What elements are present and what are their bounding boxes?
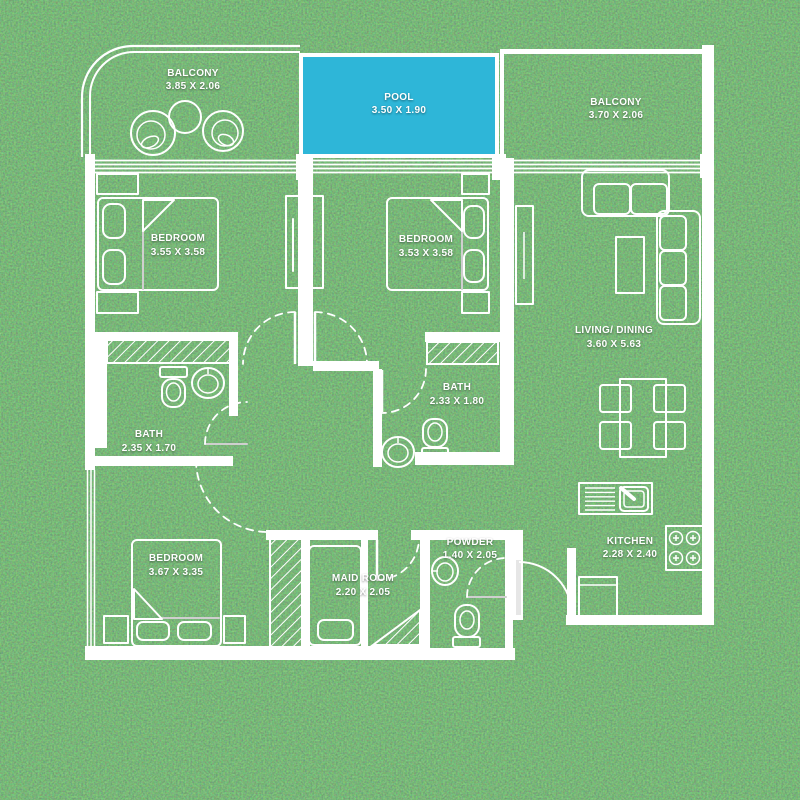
wall-maid-top	[266, 530, 378, 540]
room-dims: 1.40 X 2.05	[443, 550, 498, 561]
wall-bottom-left	[85, 646, 430, 660]
room-dims: 3.50 X 1.90	[372, 105, 427, 116]
room-dims: 2.33 X 1.80	[430, 396, 485, 407]
room-dims: 3.70 X 2.06	[589, 110, 644, 121]
room-name: BATH	[443, 382, 471, 393]
room-name: LIVING/ DINING	[575, 325, 653, 336]
room-name: BALCONY	[167, 68, 219, 79]
room-name: MAID ROOM	[332, 573, 394, 584]
wall-bedroom2-bottom	[313, 361, 379, 371]
wall-living-left	[500, 158, 514, 452]
room-dims: 2.35 X 1.70	[122, 443, 177, 454]
room-name: KITCHEN	[607, 536, 654, 547]
balcony-right-railing-top	[500, 49, 714, 54]
wall-powder-bottom	[428, 648, 515, 660]
wall-bath2-left	[373, 369, 382, 467]
room-name: BEDROOM	[151, 233, 205, 244]
wall-bedroom1-bottom	[95, 332, 238, 341]
wall-left-bath	[85, 336, 107, 448]
room-name: POWDER	[447, 537, 494, 548]
shaft-hatch	[270, 537, 302, 647]
wall-powder-left	[420, 530, 430, 660]
floor-plan-canvas: BALCONY 3.85 X 2.06 POOL 3.50 X 1.90 BAL…	[0, 0, 800, 800]
wall-bath2-top	[425, 332, 502, 342]
wall-powder-right-lower	[505, 618, 513, 660]
pier-top-right	[700, 154, 714, 178]
room-dims: 3.60 X 5.63	[587, 339, 642, 350]
room-dims: 3.53 X 3.58	[399, 248, 454, 259]
room-name: POOL	[384, 92, 414, 103]
room-name: BALCONY	[590, 97, 642, 108]
room-dims: 2.20 X 2.05	[336, 587, 391, 598]
room-dims: 3.85 X 2.06	[166, 81, 221, 92]
room-dims: 3.67 X 3.35	[149, 567, 204, 578]
shower-hatch-icon	[427, 342, 498, 364]
room-dims: 2.28 X 2.40	[603, 549, 658, 560]
room-name: BATH	[135, 429, 163, 440]
room-dims: 3.55 X 3.58	[151, 247, 206, 258]
room-name: BEDROOM	[399, 234, 453, 245]
pier-top-left	[85, 154, 95, 180]
balcony-right-railing-left	[500, 49, 504, 158]
shower-hatch-icon	[107, 338, 230, 363]
room-name: BEDROOM	[149, 553, 203, 564]
wall-bath1-bottom	[85, 456, 233, 466]
floor-plan-screenshot: BALCONY 3.85 X 2.06 POOL 3.50 X 1.90 BAL…	[0, 0, 800, 800]
